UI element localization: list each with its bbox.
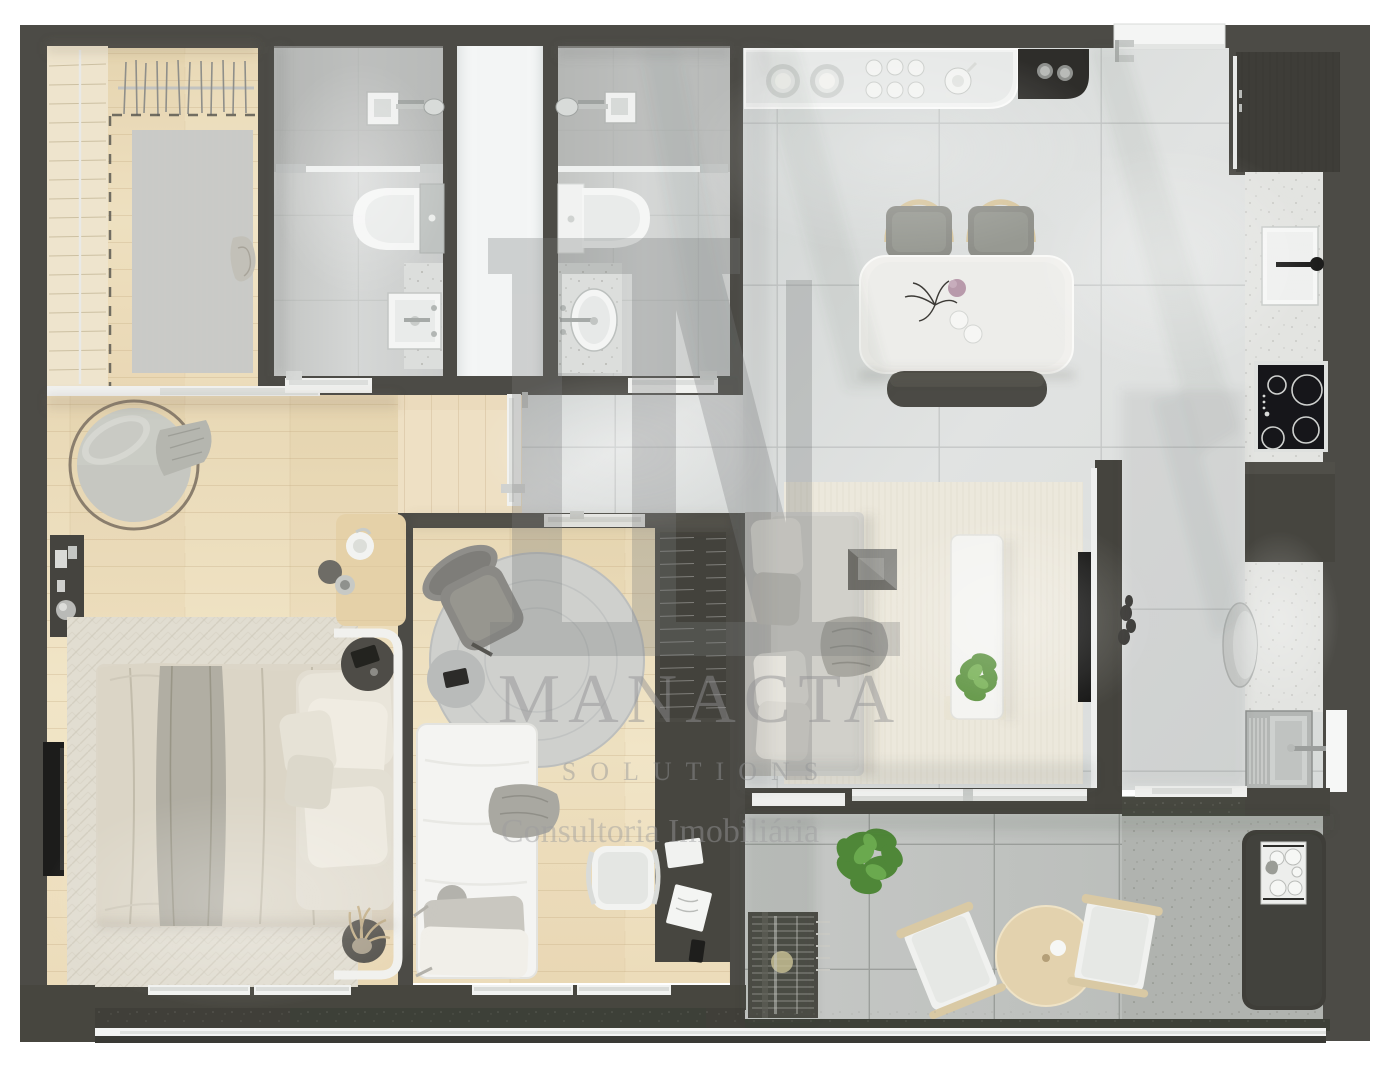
svg-text:Consultoria Imobiliária: Consultoria Imobiliária [501, 813, 819, 850]
svg-text:MANACTA: MANACTA [498, 661, 902, 738]
svg-text:SOLUTIONS: SOLUTIONS [562, 757, 832, 786]
